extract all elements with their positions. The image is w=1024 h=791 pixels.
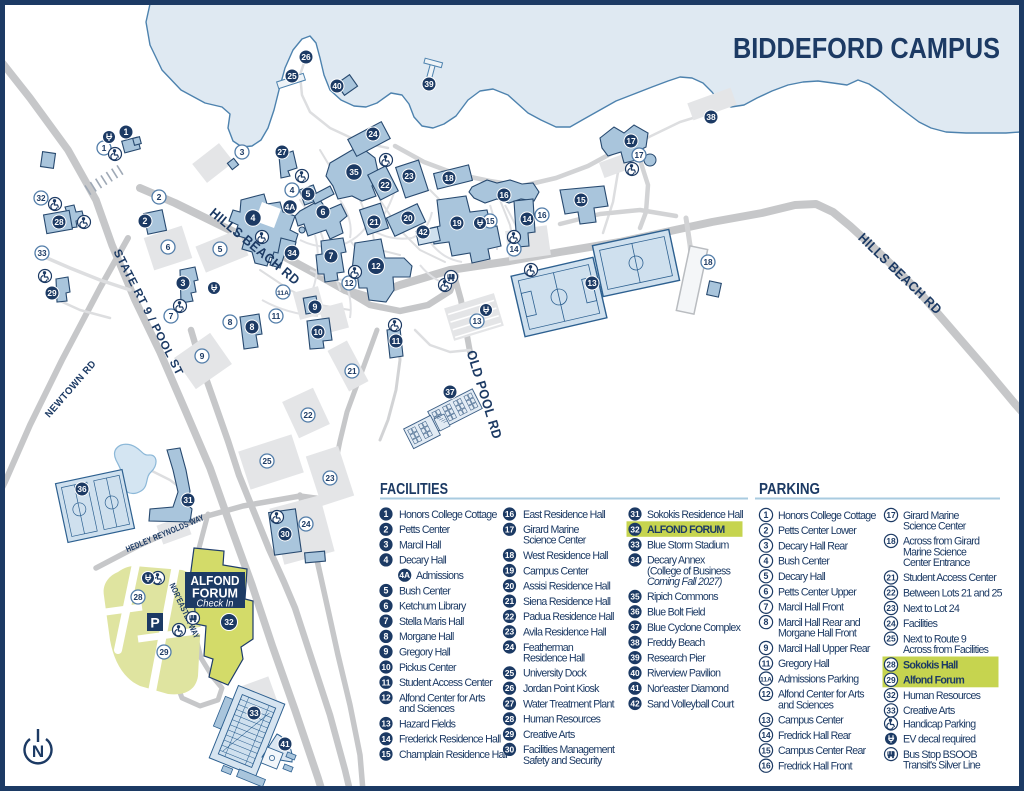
svg-text:21: 21: [369, 217, 379, 227]
svg-text:22: 22: [303, 411, 313, 420]
svg-text:23: 23: [505, 627, 515, 637]
svg-text:9: 9: [200, 351, 205, 361]
svg-text:11A: 11A: [760, 677, 772, 684]
svg-text:Ripich Commons: Ripich Commons: [647, 591, 718, 603]
svg-text:Ketchum Library: Ketchum Library: [399, 601, 467, 613]
svg-text:Bush Center: Bush Center: [399, 585, 451, 597]
svg-text:14: 14: [522, 214, 532, 224]
svg-text:Honors College Cottage: Honors College Cottage: [399, 509, 497, 521]
svg-text:Siena Residence Hall: Siena Residence Hall: [523, 596, 611, 608]
svg-text:BIDDEFORD CAMPUS: BIDDEFORD CAMPUS: [733, 33, 1000, 65]
svg-text:19: 19: [452, 218, 462, 228]
svg-text:32: 32: [36, 194, 46, 203]
svg-text:Safety and Security: Safety and Security: [523, 755, 603, 767]
svg-text:4A: 4A: [399, 570, 410, 580]
svg-text:16: 16: [505, 509, 515, 519]
svg-text:5: 5: [218, 244, 223, 254]
svg-text:12: 12: [381, 693, 391, 703]
svg-text:40: 40: [630, 668, 640, 678]
svg-text:Alfond Forum: Alfond Forum: [903, 675, 964, 687]
svg-text:42: 42: [418, 227, 428, 237]
svg-text:2: 2: [143, 216, 148, 226]
svg-text:University Dock: University Dock: [523, 668, 587, 680]
svg-text:34: 34: [287, 248, 297, 258]
svg-text:29: 29: [159, 648, 169, 657]
svg-text:Nor'easter Diamond: Nor'easter Diamond: [647, 683, 729, 695]
svg-text:Decary Hall: Decary Hall: [778, 571, 825, 583]
svg-text:Blue Bolt Field: Blue Bolt Field: [647, 607, 706, 619]
svg-text:Across from Facilities: Across from Facilities: [903, 644, 989, 656]
svg-text:Gregory Hall: Gregory Hall: [778, 658, 829, 670]
svg-text:Next to Lot 24: Next to Lot 24: [903, 603, 960, 615]
svg-text:Sokokis Residence Hall: Sokokis Residence Hall: [647, 509, 743, 521]
svg-text:42: 42: [630, 699, 640, 709]
svg-text:8: 8: [228, 317, 233, 327]
svg-text:24: 24: [368, 129, 378, 139]
svg-text:11: 11: [392, 336, 401, 346]
svg-text:4: 4: [290, 185, 295, 195]
svg-text:9: 9: [764, 643, 769, 653]
svg-text:Sokokis Hall: Sokokis Hall: [903, 659, 958, 671]
svg-text:35: 35: [349, 167, 359, 177]
svg-text:30: 30: [280, 529, 290, 539]
svg-text:18: 18: [444, 173, 454, 183]
svg-text:30: 30: [505, 744, 515, 754]
svg-text:21: 21: [347, 367, 357, 376]
svg-text:9: 9: [313, 302, 318, 312]
svg-text:41: 41: [280, 739, 290, 749]
svg-text:12: 12: [371, 261, 381, 271]
svg-text:25: 25: [262, 457, 272, 466]
svg-text:Admissions: Admissions: [416, 570, 464, 582]
svg-text:24: 24: [301, 520, 311, 529]
svg-text:33: 33: [37, 249, 47, 258]
svg-text:West Residence Hall: West Residence Hall: [523, 550, 608, 562]
svg-text:13: 13: [381, 719, 391, 729]
svg-text:Campus Center Rear: Campus Center Rear: [778, 745, 867, 757]
svg-text:Residence Hall: Residence Hall: [523, 652, 585, 664]
svg-text:11: 11: [382, 677, 391, 687]
svg-text:Science Center: Science Center: [523, 535, 587, 547]
svg-text:18: 18: [505, 550, 515, 560]
svg-text:3: 3: [764, 541, 769, 551]
svg-text:32: 32: [224, 617, 234, 627]
svg-text:14: 14: [761, 730, 771, 740]
svg-text:4: 4: [764, 556, 769, 566]
svg-text:3: 3: [181, 278, 186, 288]
svg-text:Admissions Parking: Admissions Parking: [778, 673, 859, 685]
svg-text:31: 31: [183, 495, 193, 505]
svg-text:27: 27: [505, 699, 515, 709]
svg-text:15: 15: [381, 749, 391, 759]
svg-text:Science Center: Science Center: [903, 520, 967, 532]
svg-text:28: 28: [505, 714, 515, 724]
svg-text:EV decal required: EV decal required: [903, 734, 976, 746]
svg-text:23: 23: [325, 474, 335, 483]
svg-text:17: 17: [634, 151, 644, 160]
svg-text:22: 22: [380, 180, 390, 190]
svg-text:Marcil Hall Front: Marcil Hall Front: [778, 602, 844, 614]
svg-text:8: 8: [250, 322, 255, 332]
svg-text:Research Pier: Research Pier: [647, 652, 706, 664]
svg-text:Human Resources: Human Resources: [523, 714, 601, 726]
svg-text:FACILITIES: FACILITIES: [380, 481, 448, 498]
svg-text:28: 28: [886, 660, 896, 670]
svg-text:6: 6: [321, 207, 326, 217]
svg-text:29: 29: [505, 729, 515, 739]
svg-text:12: 12: [344, 279, 354, 288]
svg-text:4: 4: [251, 213, 256, 223]
svg-text:10: 10: [313, 327, 323, 337]
svg-text:24: 24: [505, 642, 515, 652]
svg-text:22: 22: [886, 588, 896, 598]
svg-text:Student Access Center: Student Access Center: [903, 572, 997, 584]
svg-text:7: 7: [329, 251, 334, 261]
svg-text:17: 17: [626, 136, 636, 146]
svg-text:1: 1: [102, 143, 107, 153]
svg-text:Decary Hall: Decary Hall: [399, 555, 446, 567]
svg-text:Bush Center: Bush Center: [778, 556, 830, 568]
svg-text:26: 26: [505, 683, 515, 693]
svg-text:38: 38: [706, 112, 716, 122]
svg-text:Pickus Center: Pickus Center: [399, 662, 457, 674]
svg-text:13: 13: [587, 278, 597, 288]
svg-text:N: N: [32, 742, 44, 761]
svg-text:Campus Center: Campus Center: [523, 565, 589, 577]
svg-text:18: 18: [703, 258, 713, 267]
svg-text:33: 33: [630, 540, 640, 550]
svg-text:27: 27: [277, 147, 287, 157]
svg-text:6: 6: [166, 242, 171, 252]
svg-text:8: 8: [384, 631, 389, 641]
svg-text:29: 29: [886, 675, 896, 685]
svg-text:5: 5: [384, 586, 389, 596]
svg-text:Sand Volleyball Court: Sand Volleyball Court: [647, 698, 734, 710]
svg-text:16: 16: [761, 761, 771, 771]
svg-text:Creative Arts: Creative Arts: [523, 729, 575, 741]
svg-text:28: 28: [133, 593, 143, 602]
svg-text:Honors College Cottage: Honors College Cottage: [778, 510, 876, 522]
svg-text:14: 14: [509, 245, 519, 254]
svg-text:Champlain Residence Hall: Champlain Residence Hall: [399, 749, 507, 761]
svg-text:15: 15: [485, 217, 495, 226]
svg-text:6: 6: [764, 587, 769, 597]
svg-text:Frederick Residence Hall: Frederick Residence Hall: [399, 734, 501, 746]
svg-text:2: 2: [384, 524, 389, 534]
svg-text:15: 15: [761, 745, 771, 755]
svg-text:18: 18: [886, 536, 896, 546]
svg-text:Morgane Hall: Morgane Hall: [399, 631, 454, 643]
svg-text:Blue Storm Stadium: Blue Storm Stadium: [647, 539, 729, 551]
svg-text:37: 37: [630, 622, 640, 632]
svg-text:Petts Center Lower: Petts Center Lower: [778, 525, 857, 537]
svg-text:Padua Residence Hall: Padua Residence Hall: [523, 611, 614, 623]
svg-text:33: 33: [249, 708, 259, 718]
svg-text:14: 14: [381, 734, 391, 744]
svg-text:36: 36: [77, 484, 87, 494]
svg-text:1: 1: [124, 127, 129, 137]
svg-text:Between Lots 21 and 25: Between Lots 21 and 25: [903, 588, 1003, 600]
svg-text:Avila Residence Hall: Avila Residence Hall: [523, 627, 606, 639]
svg-text:PARKING: PARKING: [759, 481, 820, 498]
svg-text:32: 32: [886, 690, 896, 700]
svg-text:17: 17: [505, 524, 515, 534]
svg-text:Creative Arts: Creative Arts: [903, 705, 955, 717]
svg-text:and Sciences: and Sciences: [778, 699, 834, 711]
svg-text:11: 11: [762, 658, 771, 668]
svg-text:Riverview Pavilion: Riverview Pavilion: [647, 668, 721, 680]
svg-text:1: 1: [764, 510, 769, 520]
svg-text:39: 39: [630, 653, 640, 663]
svg-text:Blue Cyclone Complex: Blue Cyclone Complex: [647, 622, 742, 634]
svg-text:Handicap Parking: Handicap Parking: [903, 718, 976, 730]
svg-text:21: 21: [886, 572, 896, 582]
svg-text:37: 37: [445, 387, 455, 397]
svg-text:34: 34: [630, 555, 640, 565]
svg-text:4A: 4A: [285, 202, 296, 212]
svg-text:Marcil Hall Upper Rear: Marcil Hall Upper Rear: [778, 643, 871, 655]
svg-text:17: 17: [886, 510, 896, 520]
svg-text:24: 24: [886, 618, 896, 628]
svg-text:7: 7: [384, 616, 389, 626]
svg-text:11A: 11A: [277, 290, 289, 297]
svg-text:11: 11: [272, 312, 281, 321]
svg-text:4: 4: [384, 555, 389, 565]
svg-text:16: 16: [537, 211, 547, 220]
svg-text:Freddy Beach: Freddy Beach: [647, 637, 705, 649]
svg-text:25: 25: [505, 668, 515, 678]
svg-text:22: 22: [505, 611, 515, 621]
svg-text:Campus Center: Campus Center: [778, 715, 844, 727]
svg-text:Stella Maris Hall: Stella Maris Hall: [399, 616, 464, 628]
svg-text:Fredrick Hall Front: Fredrick Hall Front: [778, 761, 853, 773]
svg-text:2: 2: [764, 525, 769, 535]
svg-text:21: 21: [505, 596, 515, 606]
svg-text:26: 26: [301, 52, 311, 62]
svg-text:13: 13: [761, 715, 771, 725]
svg-text:36: 36: [630, 607, 640, 617]
svg-text:16: 16: [499, 190, 509, 200]
svg-text:Marcil Hall: Marcil Hall: [399, 539, 441, 551]
svg-text:Assisi Residence Hall: Assisi Residence Hall: [523, 581, 611, 593]
svg-text:29: 29: [47, 288, 57, 298]
svg-text:8: 8: [764, 617, 769, 627]
svg-text:7: 7: [169, 311, 174, 321]
svg-text:5: 5: [306, 189, 311, 199]
svg-text:East Residence Hall: East Residence Hall: [523, 509, 605, 521]
svg-text:19: 19: [505, 566, 515, 576]
svg-text:Fredrick Hall Rear: Fredrick Hall Rear: [778, 730, 852, 742]
svg-text:10: 10: [381, 662, 391, 672]
svg-text:Center Entrance: Center Entrance: [903, 557, 970, 569]
svg-text:6: 6: [384, 601, 389, 611]
svg-text:Petts Center: Petts Center: [399, 524, 451, 536]
svg-text:Check In: Check In: [197, 598, 234, 610]
svg-text:38: 38: [630, 637, 640, 647]
svg-text:3: 3: [240, 147, 245, 157]
svg-text:3: 3: [384, 540, 389, 550]
svg-text:1: 1: [384, 509, 389, 519]
svg-text:Petts Center Upper: Petts Center Upper: [778, 586, 857, 598]
svg-text:7: 7: [764, 602, 769, 612]
svg-text:2: 2: [157, 192, 162, 202]
svg-text:5: 5: [764, 571, 769, 581]
svg-text:Water Treatment Plant: Water Treatment Plant: [523, 698, 615, 710]
svg-text:23: 23: [886, 603, 896, 613]
svg-text:33: 33: [886, 705, 896, 715]
svg-text:39: 39: [424, 79, 434, 89]
svg-text:20: 20: [403, 213, 413, 223]
svg-text:40: 40: [332, 81, 342, 91]
svg-text:15: 15: [576, 195, 586, 205]
svg-text:31: 31: [630, 509, 640, 519]
svg-text:25: 25: [287, 71, 297, 81]
svg-text:20: 20: [505, 581, 515, 591]
svg-text:Coming Fall 2027): Coming Fall 2027): [647, 576, 722, 588]
svg-text:12: 12: [761, 689, 771, 699]
svg-text:25: 25: [886, 634, 896, 644]
svg-text:Hazard Fields: Hazard Fields: [399, 718, 456, 730]
svg-text:9: 9: [384, 647, 389, 657]
svg-text:Transit's Silver Line: Transit's Silver Line: [903, 760, 981, 772]
svg-text:Jordan Point Kiosk: Jordan Point Kiosk: [523, 683, 600, 695]
svg-text:P: P: [150, 615, 159, 631]
svg-text:Morgane Hall Front: Morgane Hall Front: [778, 628, 857, 640]
svg-text:13: 13: [472, 317, 482, 326]
svg-text:23: 23: [404, 171, 414, 181]
svg-text:32: 32: [630, 524, 640, 534]
svg-text:and Sciences: and Sciences: [399, 703, 455, 715]
svg-text:Gregory Hall: Gregory Hall: [399, 647, 450, 659]
svg-text:Facilities: Facilities: [903, 618, 938, 630]
svg-text:Decary Hall Rear: Decary Hall Rear: [778, 540, 849, 552]
svg-text:ALFOND FORUM: ALFOND FORUM: [647, 524, 725, 536]
svg-text:Student Access Center: Student Access Center: [399, 677, 493, 689]
svg-text:28: 28: [54, 217, 64, 227]
svg-text:35: 35: [630, 591, 640, 601]
svg-text:41: 41: [630, 683, 640, 693]
svg-text:Human Resources: Human Resources: [903, 690, 981, 702]
